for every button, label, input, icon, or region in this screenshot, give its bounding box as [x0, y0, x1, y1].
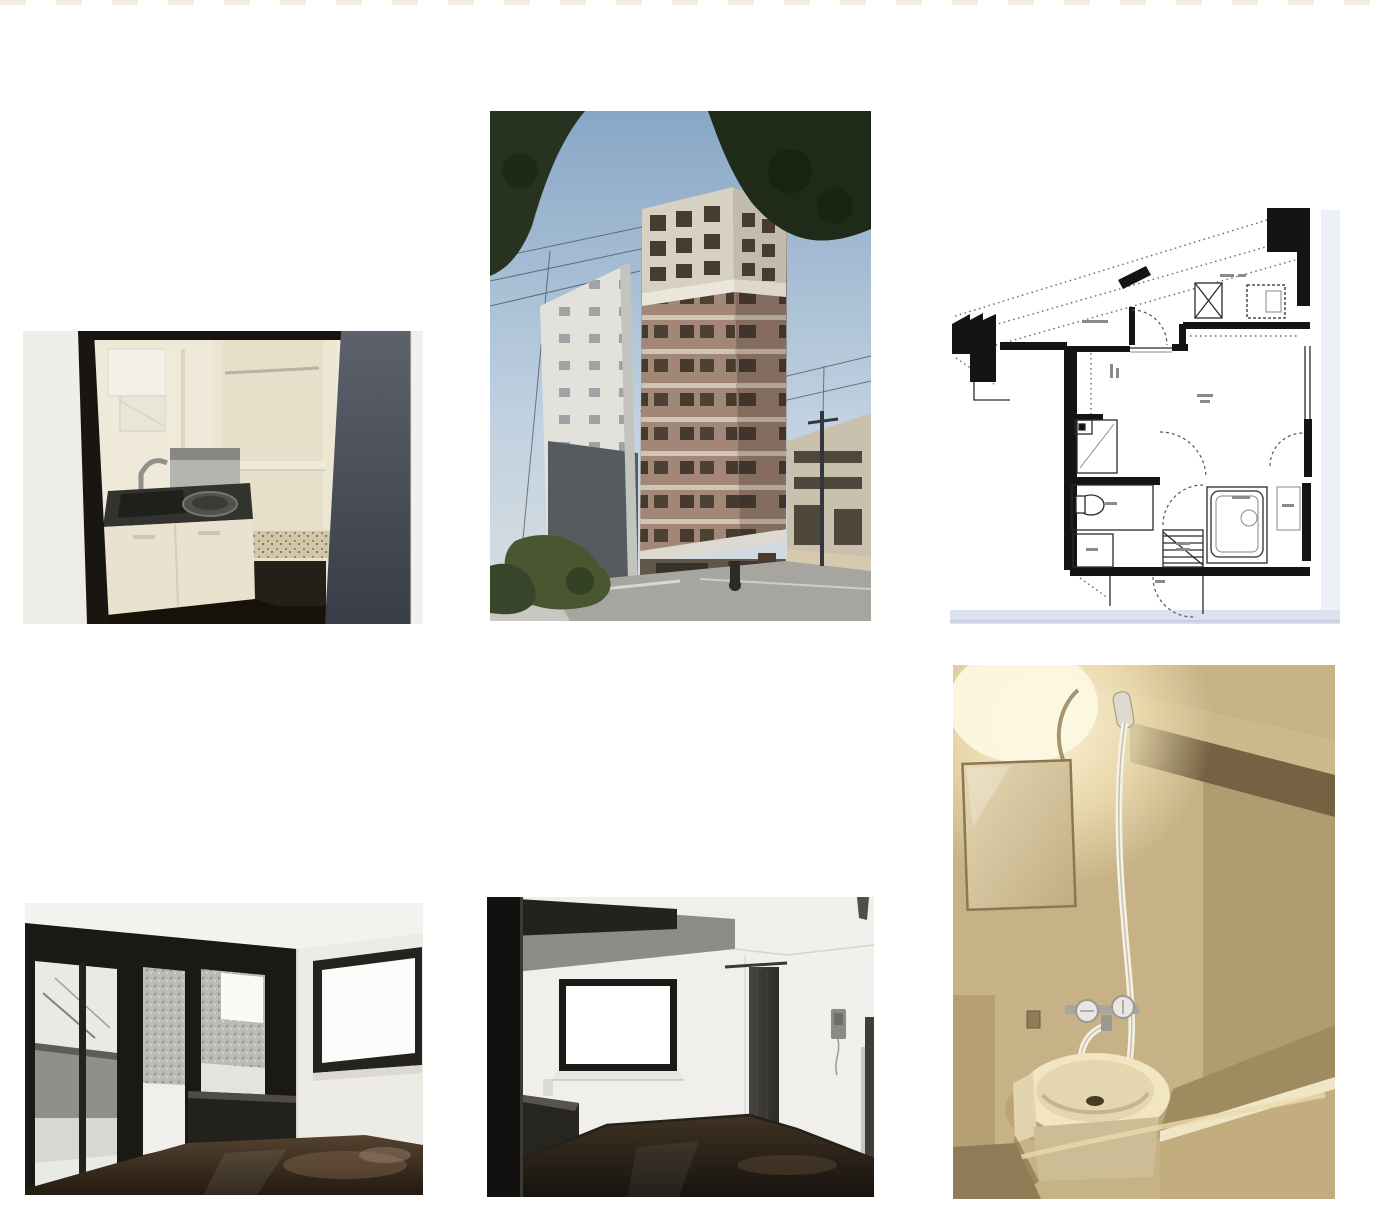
room-window-photo-art: [487, 897, 874, 1197]
bathroom-photo-art: [953, 665, 1335, 1199]
building-right-low-houses: [787, 413, 871, 579]
kitchen-right-slate-wall: [325, 331, 423, 624]
bathroom-mirror: [962, 760, 1075, 910]
floor-plan-paper: [950, 196, 1340, 624]
page-background: { "page": { "background": "#ffffff", "to…: [0, 0, 1380, 1226]
building-photo-art: [490, 111, 871, 621]
floor-plan-art: [950, 196, 1340, 624]
room2-window: [552, 979, 684, 1080]
building-left-white-tower: [540, 263, 638, 581]
photo-floor-plan[interactable]: [950, 196, 1340, 624]
photo-room-window[interactable]: [487, 897, 874, 1197]
photo-bathroom[interactable]: [953, 665, 1335, 1199]
photo-kitchen[interactable]: [23, 331, 423, 624]
building-main-tower: [640, 187, 787, 591]
photo-room-balcony[interactable]: [25, 903, 423, 1195]
room-balcony-photo-art: [25, 903, 423, 1195]
photo-building-exterior[interactable]: [490, 111, 871, 621]
kitchen-photo-art: [23, 331, 423, 624]
page-top-dashed-edge: [0, 0, 1380, 5]
room2-left-pillar: [487, 897, 523, 1197]
